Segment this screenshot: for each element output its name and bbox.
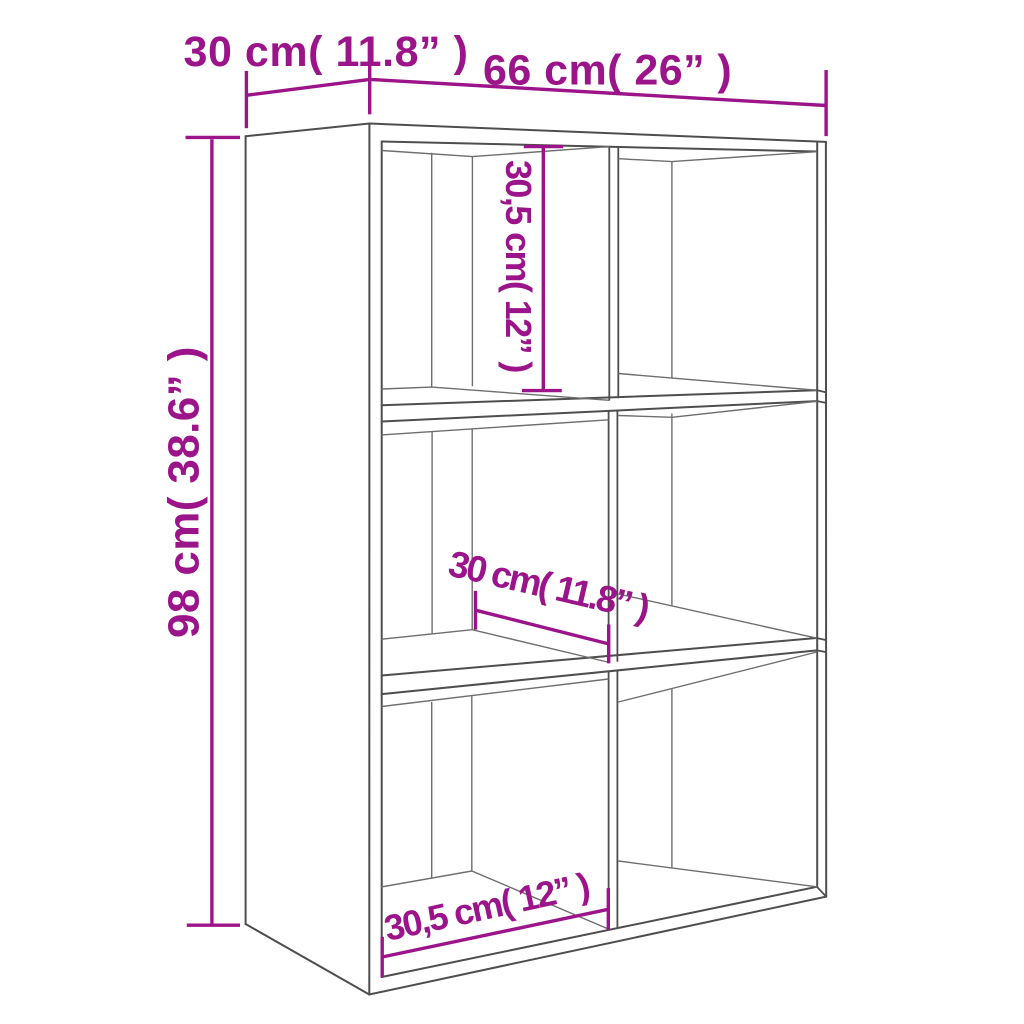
svg-text:30,5 cm( 12” ): 30,5 cm( 12” ) (498, 160, 539, 372)
svg-text:30 cm( 11.8” ): 30 cm( 11.8” ) (184, 28, 469, 76)
svg-text:98 cm( 38.6” ): 98 cm( 38.6” ) (160, 346, 209, 638)
svg-text:66 cm( 26” ): 66 cm( 26” ) (483, 47, 732, 95)
